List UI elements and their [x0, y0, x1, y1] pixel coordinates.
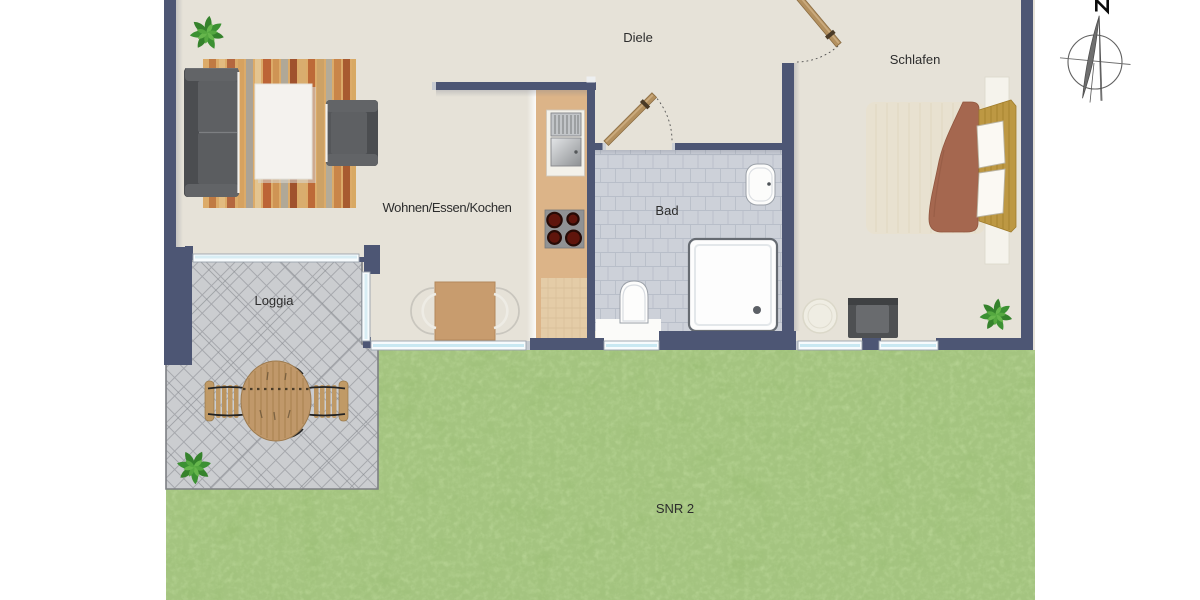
svg-text:SNR 2: SNR 2	[656, 501, 694, 516]
svg-text:Diele: Diele	[623, 30, 653, 45]
svg-text:Schlafen: Schlafen	[890, 52, 941, 67]
svg-text:Bad: Bad	[655, 203, 678, 218]
svg-text:Loggia: Loggia	[254, 293, 294, 308]
svg-text:Wohnen/Essen/Kochen: Wohnen/Essen/Kochen	[383, 200, 512, 215]
